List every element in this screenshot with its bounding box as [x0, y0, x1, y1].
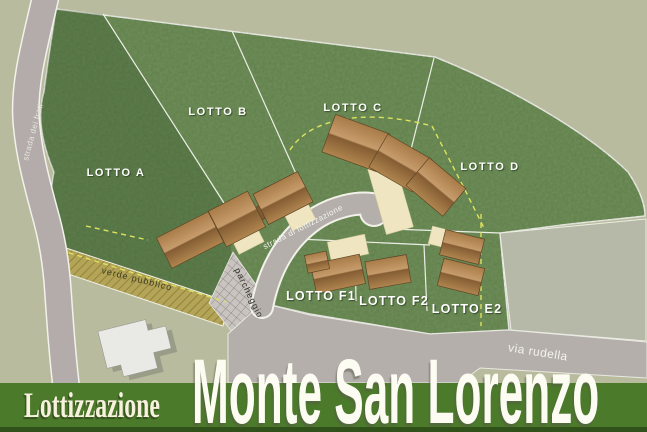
lot-label-d: LOTTO D: [460, 161, 519, 173]
lot-label-f1: LOTTO F1: [286, 289, 356, 303]
development-title: Monte San Lorenzo: [192, 346, 599, 432]
banner-prefix-text: Lottizzazione: [24, 387, 160, 423]
lot-label-e2: LOTTO E2: [432, 302, 503, 316]
buildings-lot-e2: [437, 230, 485, 296]
lot-label-c: LOTTO C: [323, 102, 382, 114]
site-plan-page: LOTTO A LOTTO B LOTTO C LOTTO D LOTTO F1…: [0, 0, 647, 432]
lot-label-a: LOTTO A: [87, 167, 146, 179]
open-area: [500, 219, 646, 341]
lot-label-f2: LOTTO F2: [359, 294, 429, 308]
lot-label-b: LOTTO B: [188, 106, 247, 118]
